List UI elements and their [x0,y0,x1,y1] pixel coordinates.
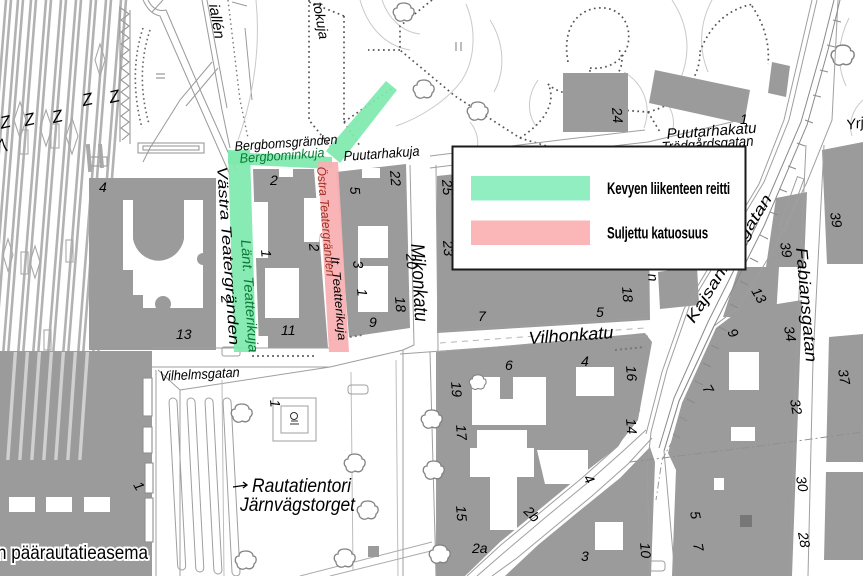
svg-text:34: 34 [781,325,799,343]
svg-text:1: 1 [267,399,284,408]
svg-text:39: 39 [777,241,795,259]
svg-text:Järnvägstorget: Järnvägstorget [239,495,356,516]
svg-text:15: 15 [453,505,470,522]
svg-text:5: 5 [347,186,364,195]
svg-text:28: 28 [795,530,814,549]
svg-text:6: 6 [505,357,513,373]
svg-text:14: 14 [623,418,640,435]
svg-text:24: 24 [609,106,626,124]
svg-text:32: 32 [787,398,805,416]
svg-text:19: 19 [448,381,465,398]
svg-text:2a: 2a [471,540,488,556]
svg-text:39: 39 [827,211,845,229]
svg-text:2: 2 [269,172,278,188]
svg-text:4: 4 [99,179,107,195]
svg-text:n: n [645,273,662,282]
svg-text:2: 2 [306,242,323,252]
svg-text:4: 4 [581,353,589,369]
svg-text:Yrj: Yrj [845,115,863,134]
svg-text:1: 1 [354,288,371,297]
svg-text:Rautatientori: Rautatientori [252,476,352,497]
svg-text:1: 1 [258,249,275,258]
svg-text:Suljettu katuosuus: Suljettu katuosuus [607,225,708,243]
svg-text:2: 2 [218,294,235,304]
svg-text:9: 9 [369,314,377,330]
svg-text:10: 10 [637,542,654,559]
svg-text:13: 13 [176,326,192,342]
svg-text:7: 7 [478,308,487,324]
svg-text:11: 11 [281,322,296,338]
svg-text:16: 16 [623,365,640,382]
svg-text:22: 22 [387,169,404,187]
svg-text:18: 18 [392,296,409,313]
svg-text:1: 1 [740,111,748,127]
svg-text:3: 3 [581,548,589,564]
svg-text:3: 3 [350,260,367,269]
svg-text:30: 30 [793,475,811,493]
svg-text:n päärautatieasema: n päärautatieasema [0,542,148,564]
svg-text:17: 17 [453,424,470,442]
svg-text:Kevyen liikenteen reitti: Kevyen liikenteen reitti [607,180,730,198]
svg-text:5: 5 [596,304,604,320]
svg-text:18: 18 [619,286,636,303]
svg-text:20: 20 [403,252,420,270]
